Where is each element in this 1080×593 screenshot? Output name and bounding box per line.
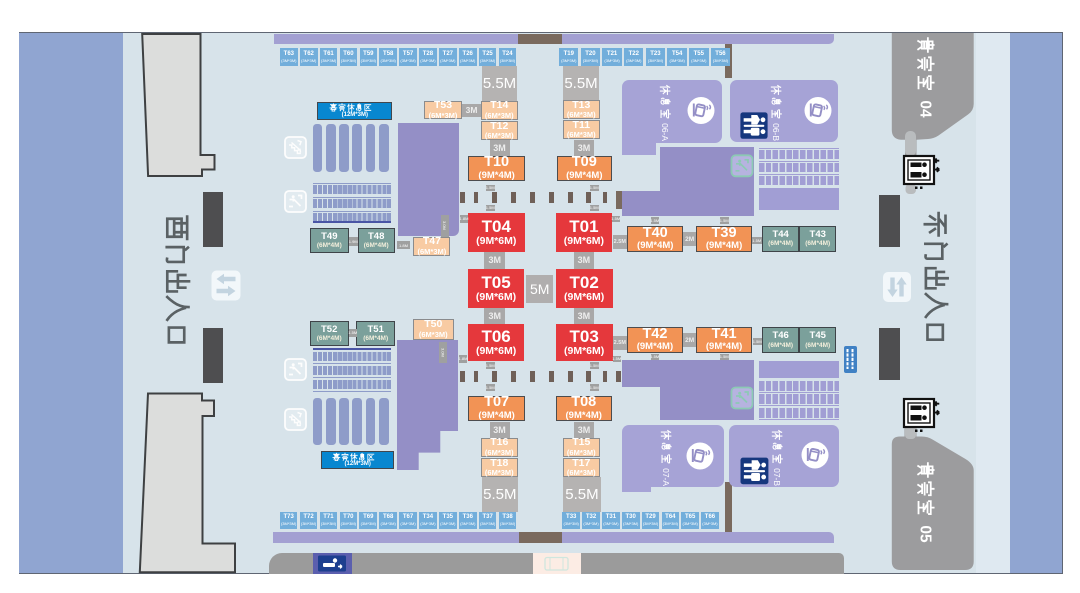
svg-text:07-B: 07-B <box>772 468 782 486</box>
svg-text:06-B: 06-B <box>771 123 781 141</box>
svg-text:04: 04 <box>917 100 934 118</box>
svg-text:05: 05 <box>917 525 934 543</box>
svg-text:07-A: 07-A <box>661 468 671 486</box>
svg-text:06-A: 06-A <box>660 123 670 141</box>
